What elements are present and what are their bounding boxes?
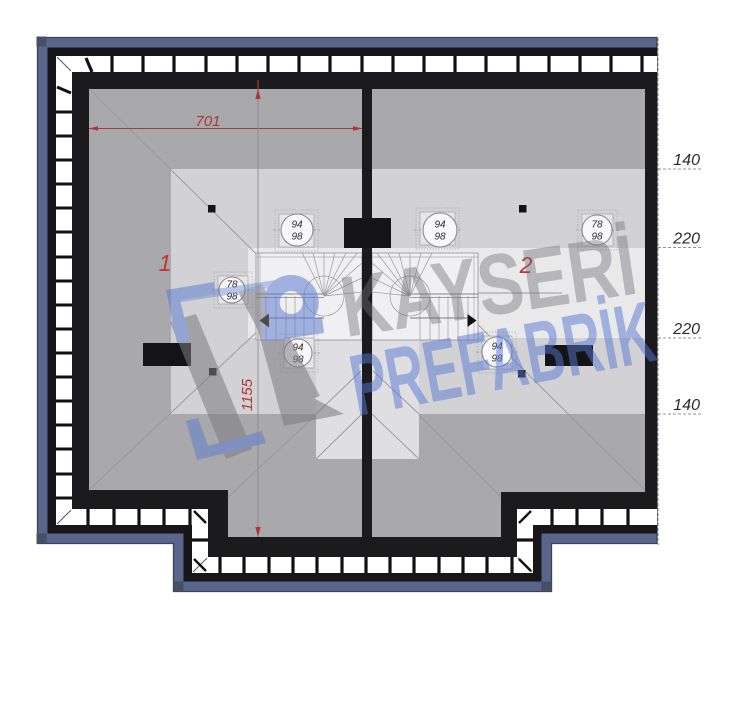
svg-text:220: 220 <box>672 321 700 338</box>
svg-text:94: 94 <box>434 220 446 231</box>
svg-text:1155: 1155 <box>239 378 256 411</box>
svg-text:220: 220 <box>672 231 700 248</box>
svg-text:140: 140 <box>673 152 700 169</box>
svg-text:701: 701 <box>195 113 220 130</box>
svg-text:98: 98 <box>291 232 303 243</box>
svg-text:94: 94 <box>291 220 303 231</box>
svg-text:140: 140 <box>673 397 700 414</box>
svg-text:1: 1 <box>159 250 172 276</box>
svg-text:98: 98 <box>434 232 446 243</box>
